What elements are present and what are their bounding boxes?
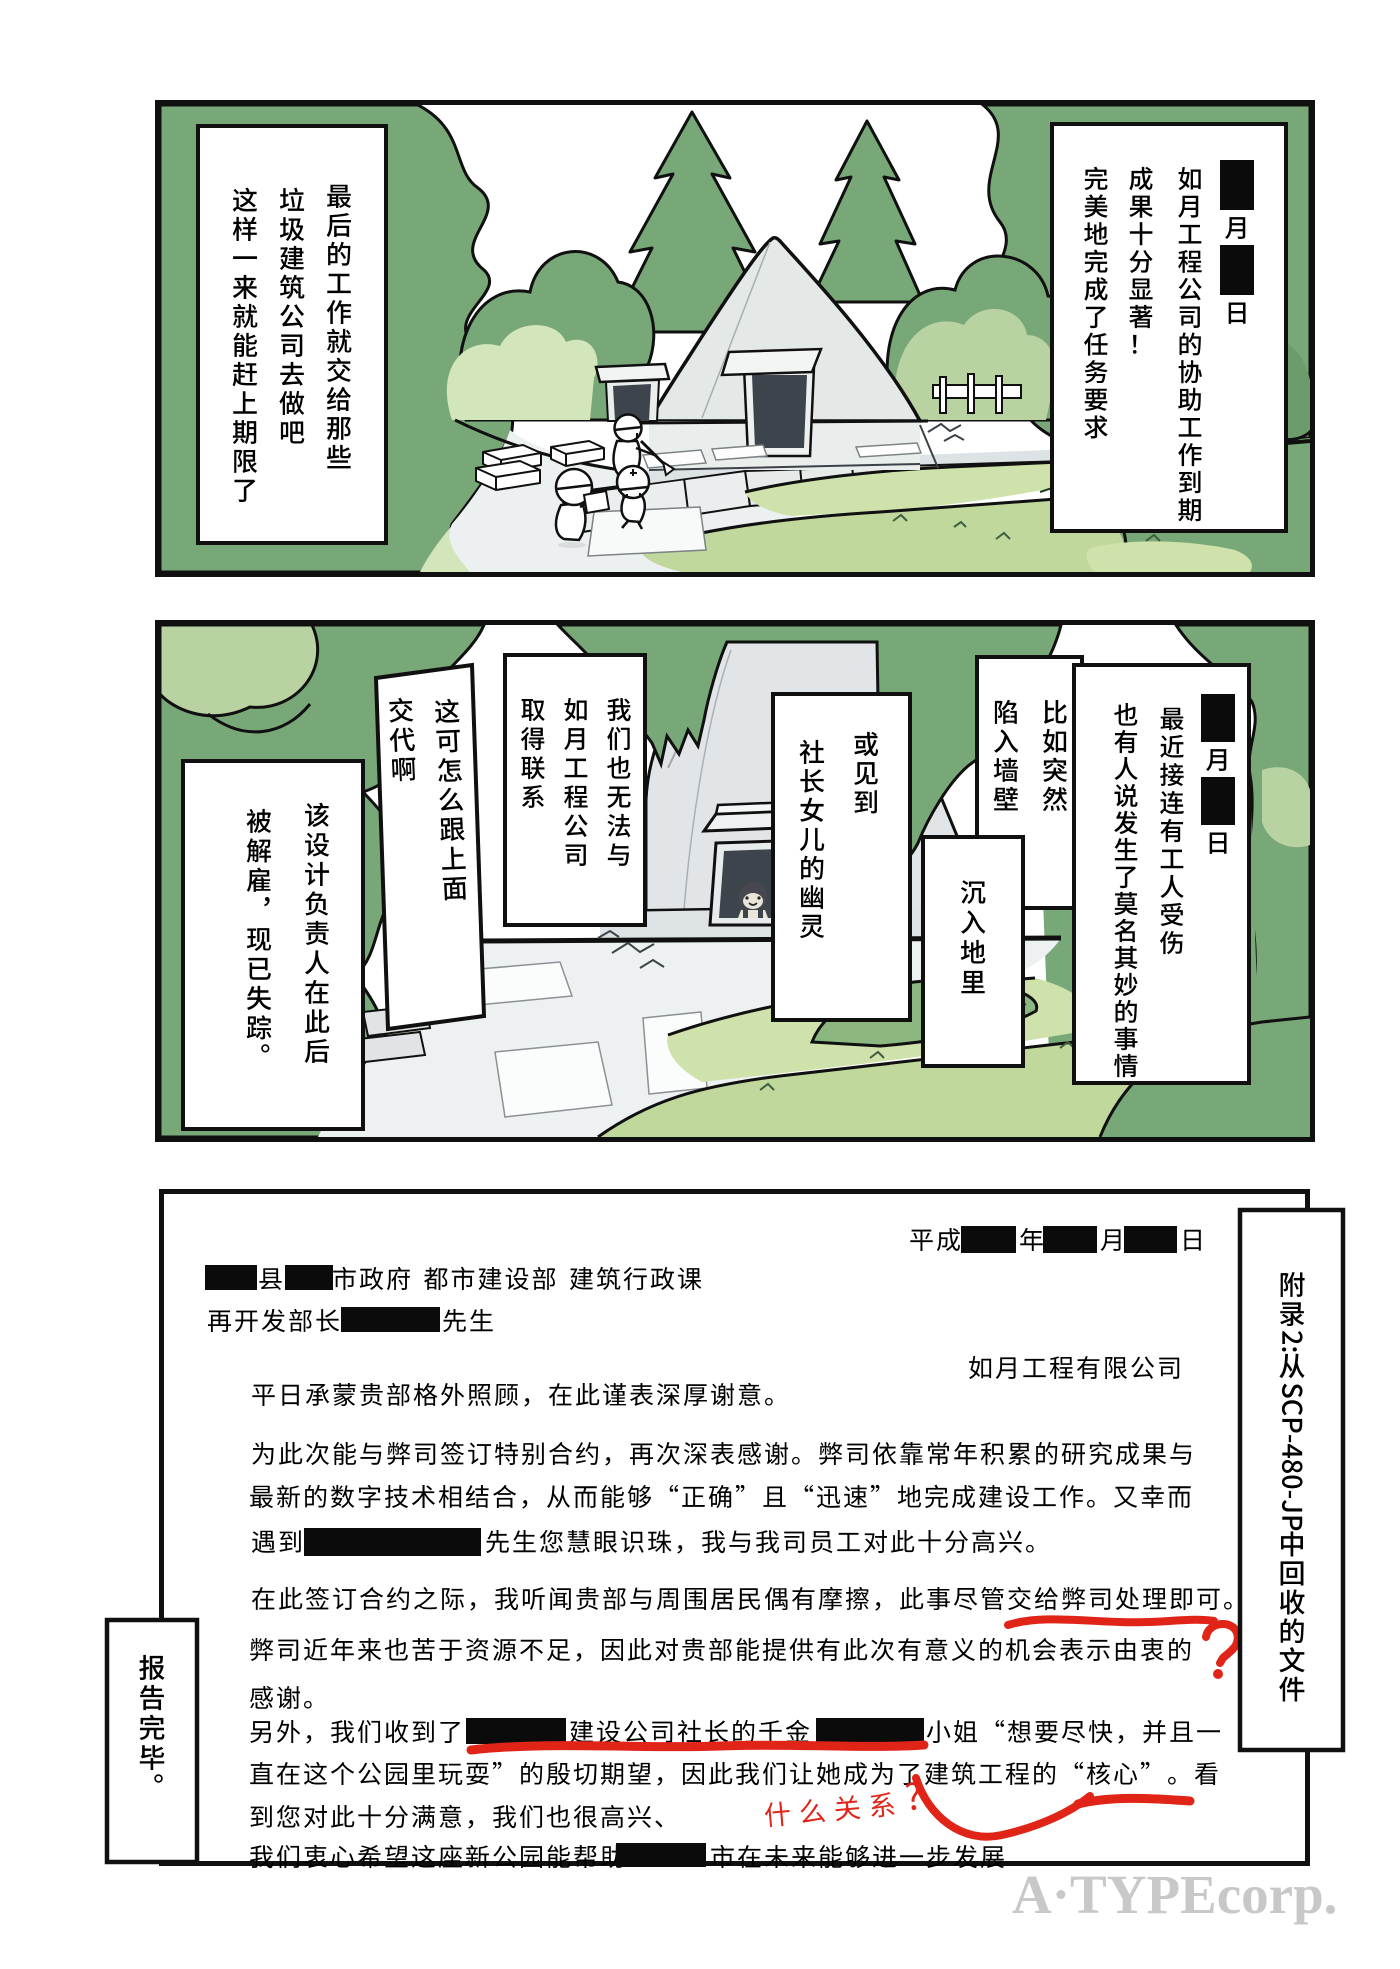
svg-text:A·TYPEcorp.: A·TYPEcorp. [1012,1864,1337,1925]
